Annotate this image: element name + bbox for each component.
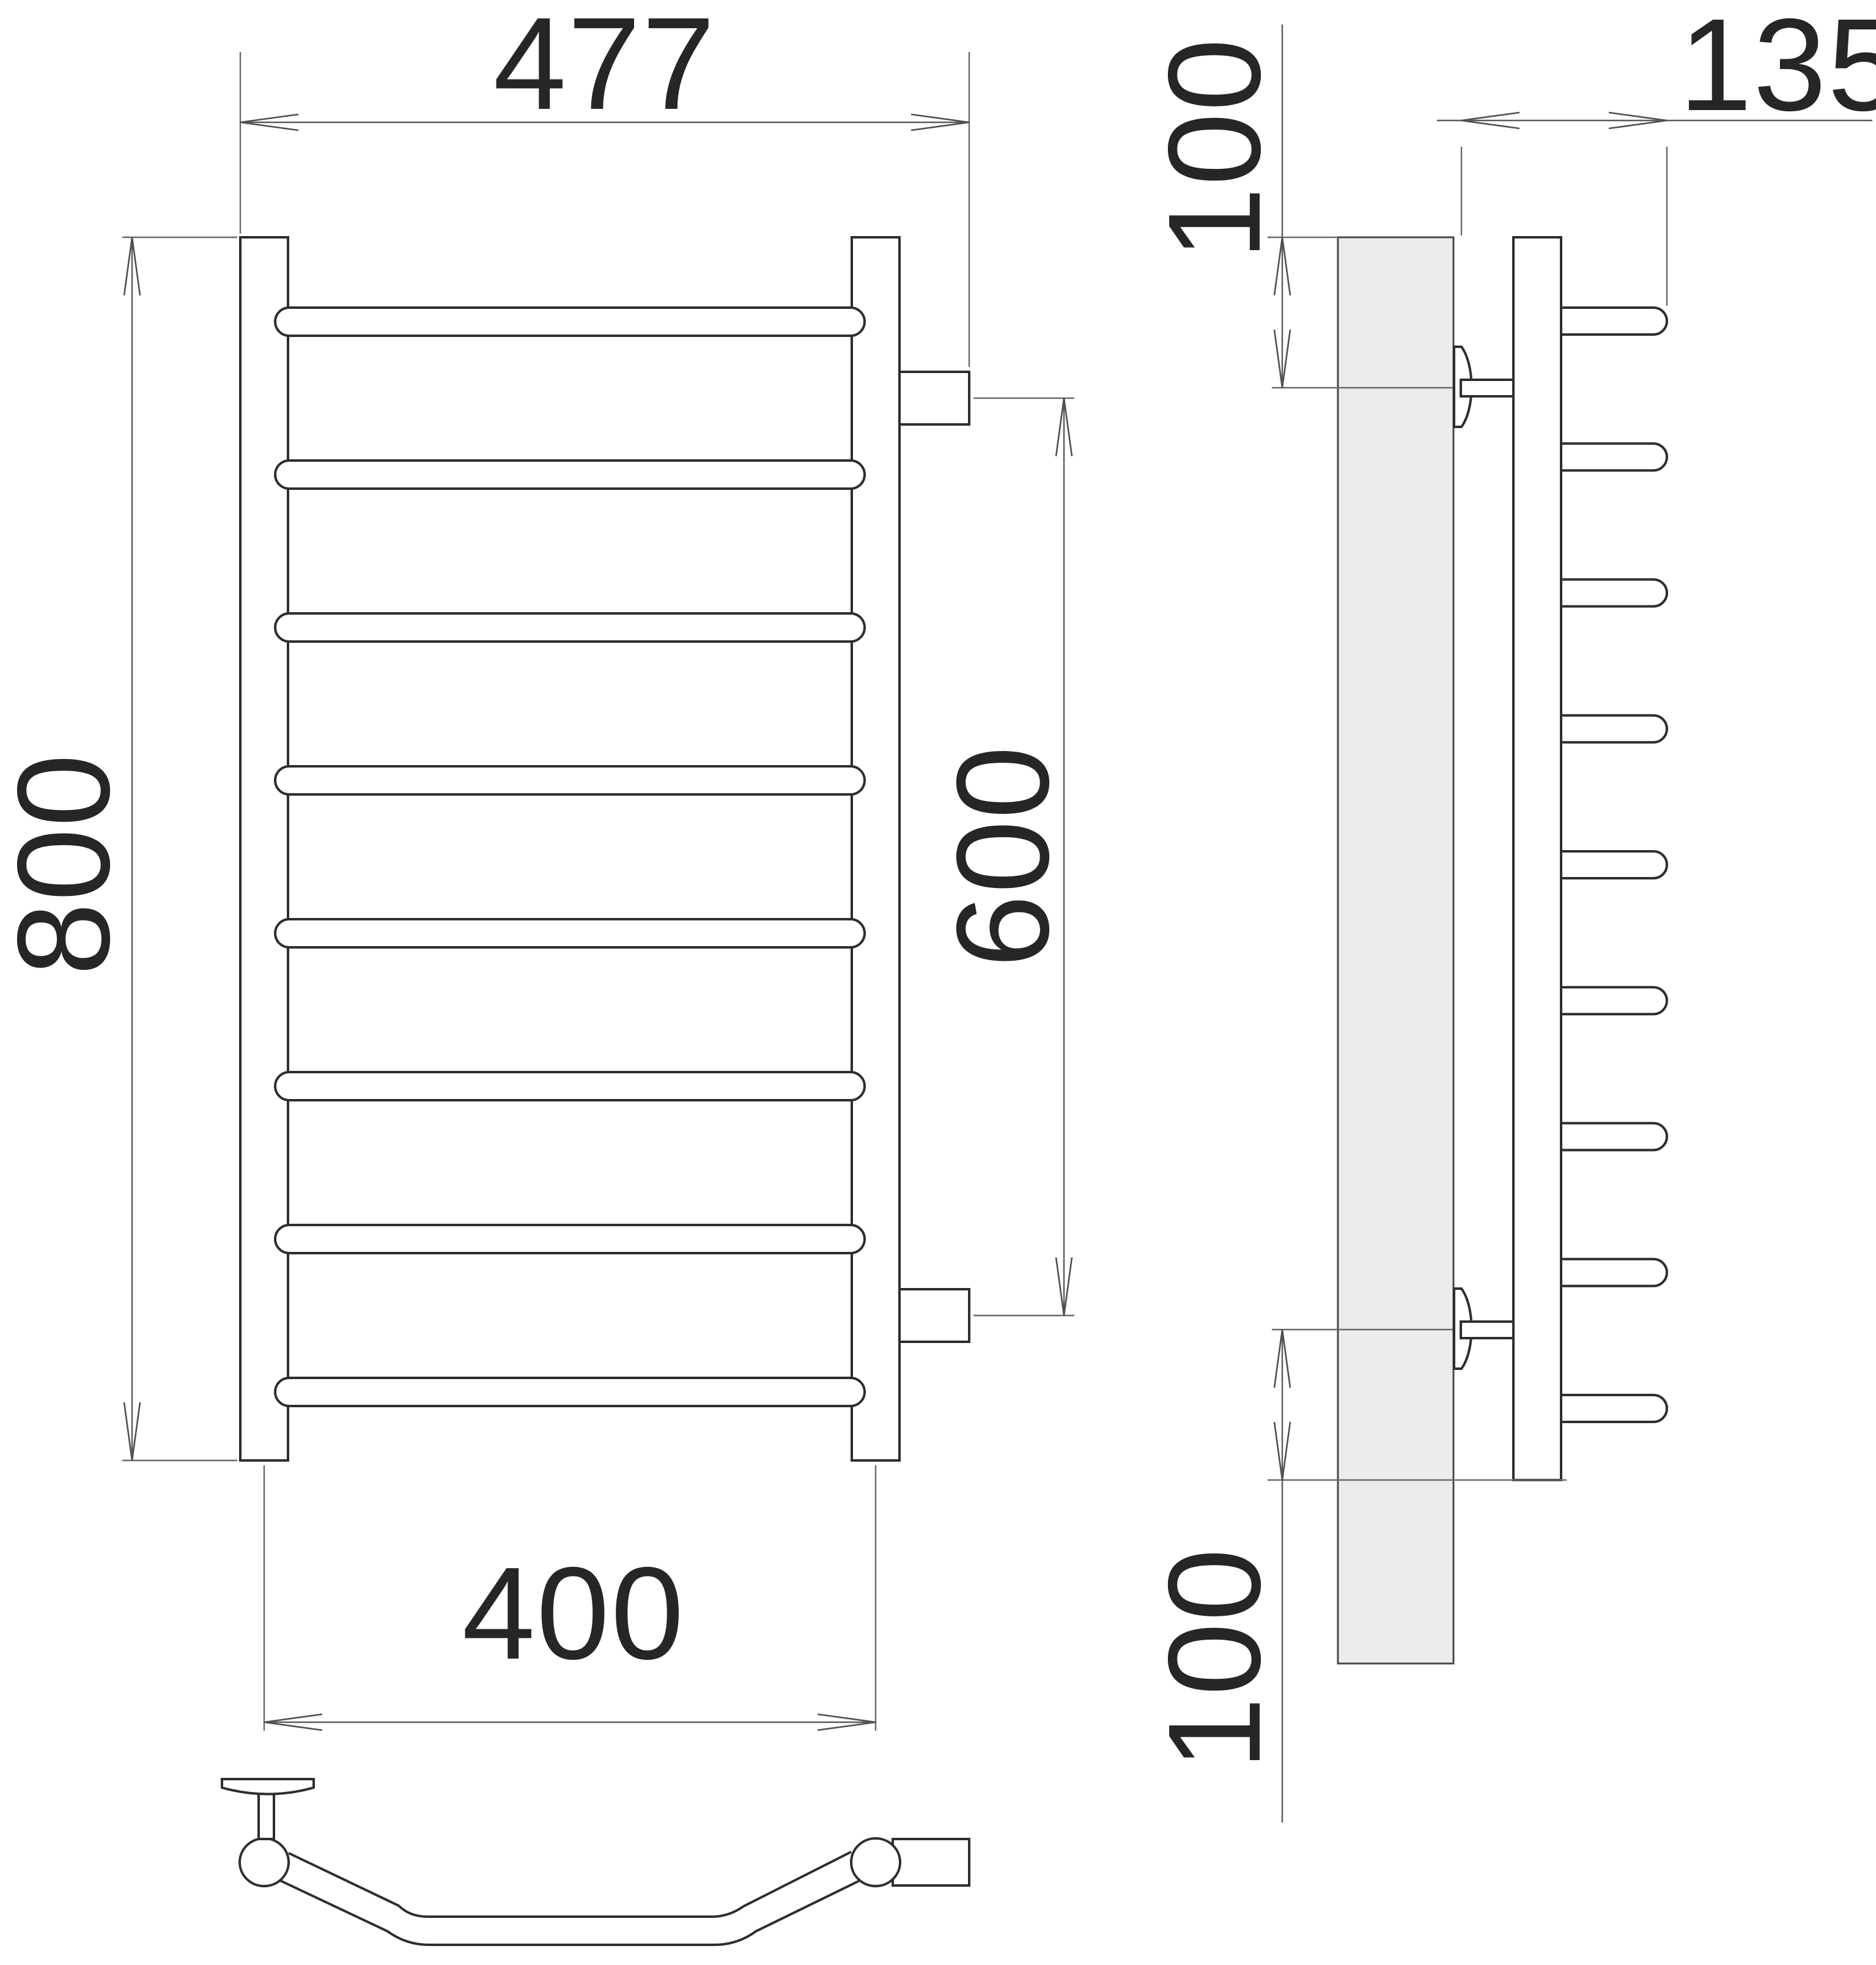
side-rung-peg (1561, 1395, 1667, 1422)
plan-view (222, 1779, 969, 1945)
dim-depth: 135 (1437, 0, 1876, 306)
front-rung (275, 766, 865, 794)
front-rung (275, 461, 865, 489)
plan-right-stile-section (851, 1838, 900, 1886)
side-stile-tube (1513, 237, 1561, 1480)
dim-label-100-bottom: 100 (1140, 1547, 1288, 1771)
side-rung-peg (1561, 580, 1667, 607)
dim-connection-spacing: 600 (929, 398, 1076, 1316)
plan-rung-inner-edge (289, 1852, 851, 1917)
side-rung-peg (1561, 851, 1667, 878)
front-rung (275, 1225, 865, 1253)
side-rung-peg (1561, 1259, 1667, 1286)
front-view: 477 800 400 600 (0, 0, 1076, 1731)
side-rung-peg (1561, 308, 1667, 335)
dim-label-400: 400 (462, 1539, 685, 1687)
front-right-stile (852, 237, 899, 1460)
dim-label-100-top: 100 (1140, 37, 1288, 261)
bottom-connection-stub (899, 1289, 969, 1342)
front-left-stile (240, 237, 288, 1460)
front-rung (275, 308, 865, 336)
side-rung-peg (1561, 987, 1667, 1014)
side-rung-pegs (1561, 308, 1667, 1422)
front-rung (275, 1378, 865, 1406)
wall-plate (1338, 237, 1453, 1663)
side-rung-peg (1561, 443, 1667, 470)
top-connection-stub (899, 372, 969, 424)
dim-top-offset: 100 (1140, 24, 1290, 388)
front-rung (275, 919, 865, 947)
plan-connection-stub (893, 1839, 969, 1885)
front-rung (275, 613, 865, 642)
side-rung-peg (1561, 1123, 1667, 1150)
dim-label-600: 600 (929, 745, 1076, 968)
front-rungs (275, 308, 865, 1406)
side-view: 135 100 100 (1140, 0, 1876, 1823)
plan-bracket-screw (222, 1779, 314, 1839)
dim-label-135: 135 (1679, 0, 1876, 138)
dim-overall-height: 800 (0, 237, 237, 1460)
dim-axis-width: 400 (264, 1465, 876, 1731)
technical-drawing-canvas: 477 800 400 600 (0, 0, 1876, 1965)
dim-label-800: 800 (0, 753, 137, 976)
plan-left-stile-section (240, 1838, 289, 1886)
dim-label-477: 477 (493, 0, 717, 137)
front-rung (275, 1072, 865, 1100)
side-rung-peg (1561, 716, 1667, 742)
